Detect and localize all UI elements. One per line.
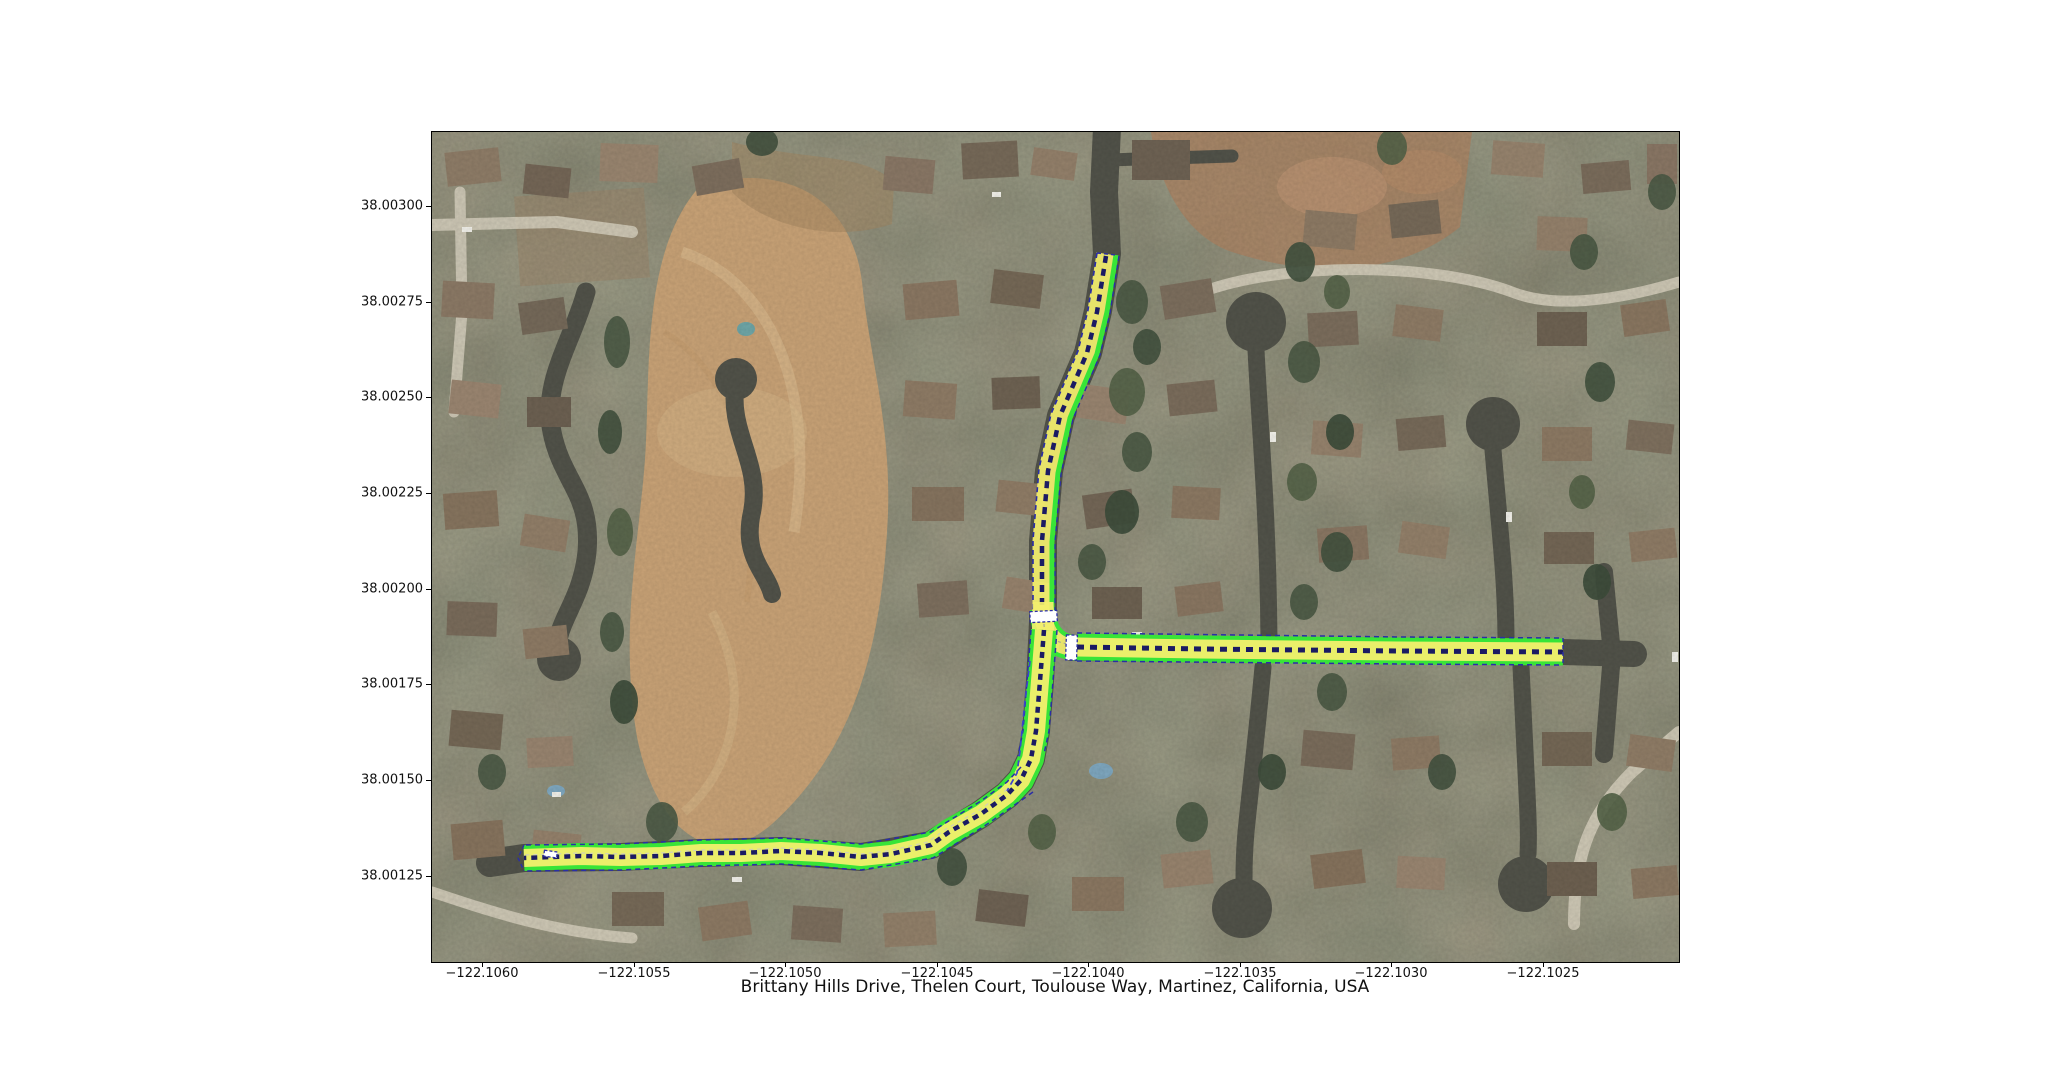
route-east-road (1077, 633, 1563, 665)
y-tick (426, 684, 431, 685)
x-tick-label: −122.1060 (446, 966, 519, 981)
y-tick-label: 38.00300 (361, 199, 423, 214)
y-tick (426, 876, 431, 877)
y-tick-label: 38.00200 (361, 582, 423, 597)
stop-line (1030, 610, 1058, 622)
y-tick-label: 38.00225 (361, 486, 423, 501)
route-south-road (518, 630, 1057, 871)
y-tick (426, 206, 431, 207)
y-tick (426, 589, 431, 590)
y-tick (426, 493, 431, 494)
figure-canvas: 38.00300 38.00275 38.00250 38.00225 38.0… (0, 0, 2055, 1080)
stop-line (1066, 635, 1078, 660)
y-tick (426, 302, 431, 303)
map-plot-area[interactable] (431, 131, 1680, 963)
axis-title: Brittany Hills Drive, Thelen Court, Toul… (741, 977, 1370, 997)
y-tick-label: 38.00175 (361, 677, 423, 692)
y-tick (426, 397, 431, 398)
route-north-road (1033, 253, 1119, 612)
y-tick-label: 38.00150 (361, 773, 423, 788)
y-tick-label: 38.00250 (361, 390, 423, 405)
stop-lines (544, 610, 1078, 858)
x-tick-label: −122.1025 (1507, 966, 1580, 981)
y-tick-label: 38.00275 (361, 295, 423, 310)
route-overlay (432, 132, 1679, 962)
y-tick-label: 38.00125 (361, 869, 423, 884)
y-tick (426, 780, 431, 781)
x-tick-label: −122.1055 (598, 966, 671, 981)
